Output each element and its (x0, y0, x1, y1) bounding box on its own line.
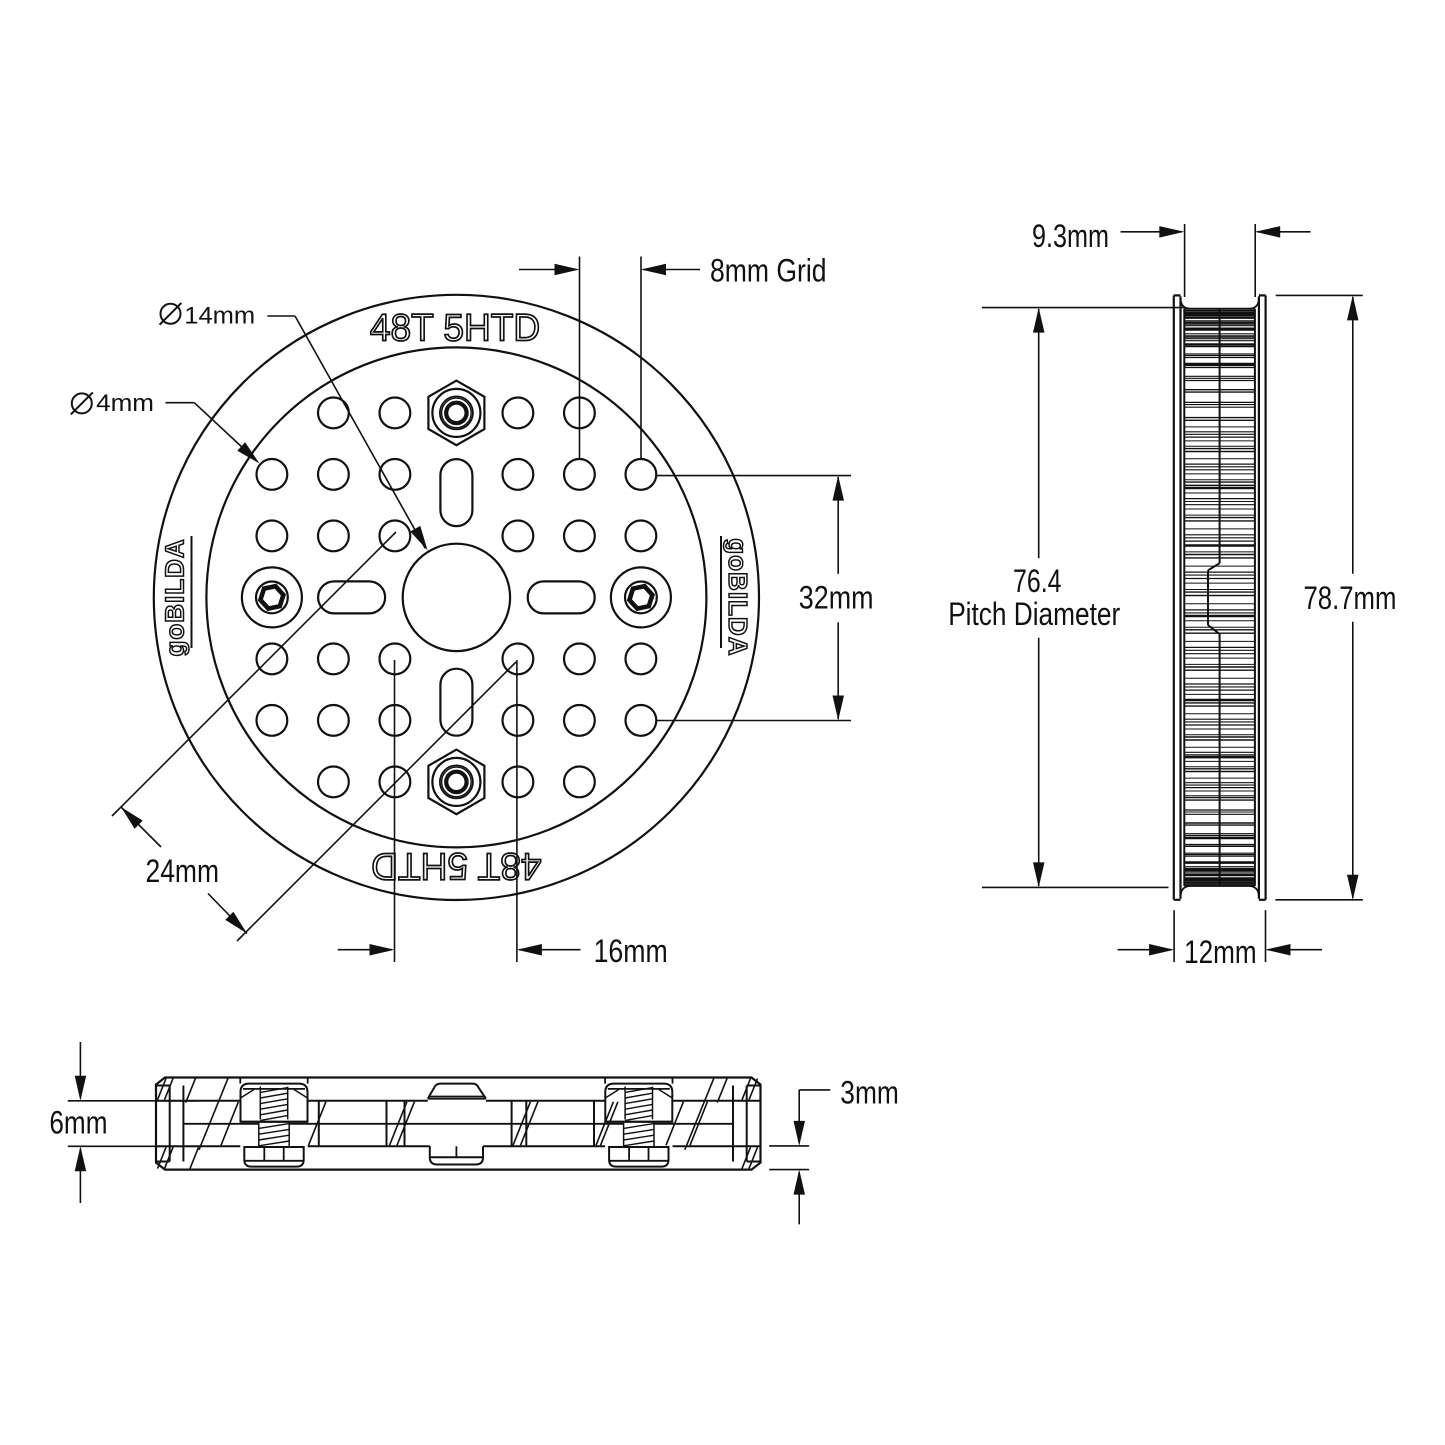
svg-text:goBILDA: goBILDA (723, 538, 753, 656)
svg-text:14mm: 14mm (184, 303, 255, 330)
svg-text:4mm: 4mm (96, 390, 154, 417)
svg-text:8mm Grid: 8mm Grid (710, 253, 827, 289)
svg-text:24mm: 24mm (146, 853, 220, 889)
svg-text:Pitch Diameter: Pitch Diameter (948, 596, 1120, 632)
svg-text:6mm: 6mm (49, 1104, 107, 1140)
svg-text:16mm: 16mm (594, 933, 668, 969)
svg-text:78.7mm: 78.7mm (1304, 580, 1397, 616)
svg-text:48T 5HTD: 48T 5HTD (371, 845, 541, 887)
svg-text:48T 5HTD: 48T 5HTD (370, 308, 540, 350)
svg-text:9.3mm: 9.3mm (1032, 218, 1109, 254)
svg-text:32mm: 32mm (799, 579, 874, 615)
svg-text:76.4: 76.4 (1013, 563, 1062, 599)
svg-text:12mm: 12mm (1184, 934, 1257, 970)
svg-text:3mm: 3mm (840, 1075, 899, 1111)
svg-text:goBILDA: goBILDA (160, 538, 190, 656)
